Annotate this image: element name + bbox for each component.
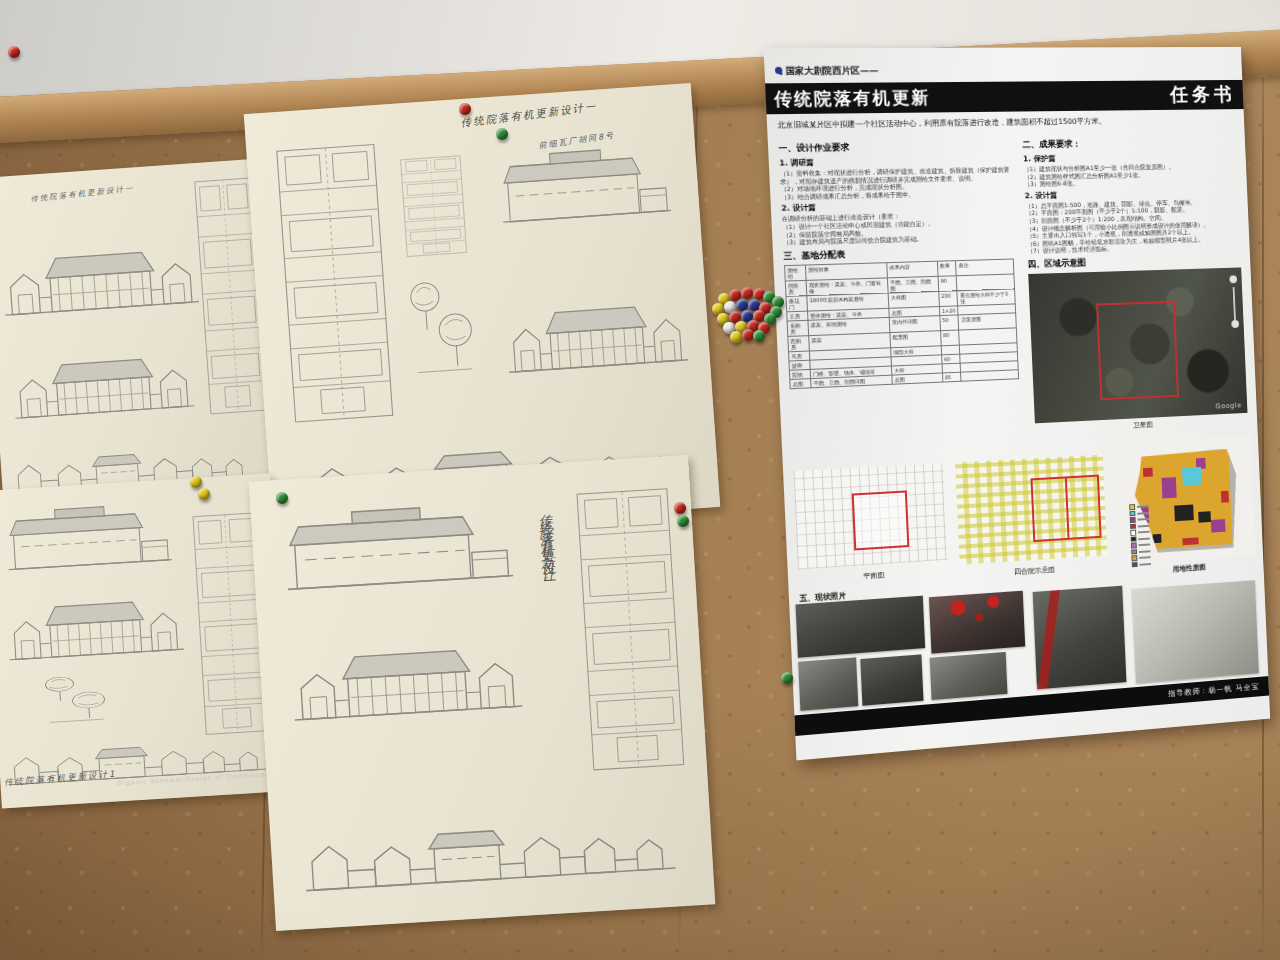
site-photo bbox=[929, 591, 1025, 654]
tree-detail-drawing bbox=[403, 269, 481, 394]
site-photo bbox=[798, 657, 858, 710]
building-elevation-drawing bbox=[278, 496, 518, 600]
legend-label-bar bbox=[1139, 550, 1151, 553]
courtyard-elevation-drawing bbox=[0, 225, 203, 324]
site-photos bbox=[763, 47, 1270, 761]
floor-plan-drawing bbox=[572, 484, 689, 775]
task-brief-poster: 国家大剧院西片区—— 传统院落有机更新 任务书 北京旧城某片区中拟建一个社区活动… bbox=[763, 47, 1270, 761]
drawing-sheet-bottom-left: 传统院落有机更新设计1 Organic Renewal Design of Tr… bbox=[0, 474, 289, 809]
legend-swatch bbox=[1131, 536, 1137, 542]
legend-swatch bbox=[1131, 549, 1137, 555]
legend-label-bar bbox=[1140, 556, 1152, 559]
courtyard-elevation-drawing bbox=[3, 577, 188, 668]
legend-swatch bbox=[1132, 562, 1138, 568]
legend-label-bar bbox=[1137, 505, 1149, 508]
building-elevation-drawing bbox=[495, 140, 675, 232]
bulletin-board-photo: 传统院落有机更新设计一 传统院落有机更新设计一 前细瓦厂胡同8号 传统院落有机更… bbox=[0, 0, 1280, 960]
site-photo bbox=[796, 596, 926, 658]
drawing-sheet-top-left: 传统院落有机更新设计一 bbox=[0, 159, 281, 508]
building-elevation-drawing bbox=[2, 498, 176, 578]
handwritten-title: 传统院落有机更新设计一 bbox=[460, 100, 598, 131]
drawing-sheet-bottom-middle: 传统院落有机更新设计·一 bbox=[249, 455, 716, 931]
street-elevation-drawing bbox=[299, 792, 678, 900]
legend-swatch bbox=[1130, 511, 1136, 517]
legend-label-bar bbox=[1138, 512, 1150, 515]
floor-plan-drawing bbox=[271, 140, 398, 427]
legend-swatch bbox=[1130, 524, 1136, 530]
site-photo bbox=[1033, 586, 1127, 690]
site-photo bbox=[1132, 580, 1259, 683]
site-photo bbox=[930, 652, 1008, 700]
legend-swatch bbox=[1131, 543, 1137, 549]
legend-row bbox=[1132, 561, 1151, 568]
legend-label-bar bbox=[1138, 518, 1150, 521]
legend-label-bar bbox=[1138, 531, 1150, 534]
courtyard-elevation-drawing bbox=[8, 334, 198, 427]
legend-swatch bbox=[1130, 505, 1136, 511]
advisors-text: 指导教师：杨一帆 马全宝 bbox=[1168, 682, 1260, 699]
courtyard-elevation-drawing bbox=[501, 279, 692, 382]
legend-label-bar bbox=[1139, 544, 1151, 547]
land-use-legend bbox=[1130, 504, 1152, 569]
tree-detail-drawing bbox=[39, 669, 113, 733]
courtyard-elevation-drawing bbox=[286, 621, 526, 730]
legend-label-bar bbox=[1139, 537, 1151, 540]
legend-swatch bbox=[1131, 530, 1137, 536]
floor-plan-drawing bbox=[397, 154, 470, 258]
legend-swatch bbox=[1132, 556, 1138, 562]
handwritten-title: 传统院落有机更新设计一 bbox=[30, 184, 135, 205]
board-seam bbox=[1262, 20, 1264, 960]
legend-swatch bbox=[1130, 517, 1136, 523]
site-photo bbox=[860, 654, 923, 705]
legend-label-bar bbox=[1140, 563, 1152, 566]
legend-label-bar bbox=[1138, 525, 1150, 528]
handwritten-title-vertical: 传统院落有机更新设计·一 bbox=[535, 503, 570, 784]
